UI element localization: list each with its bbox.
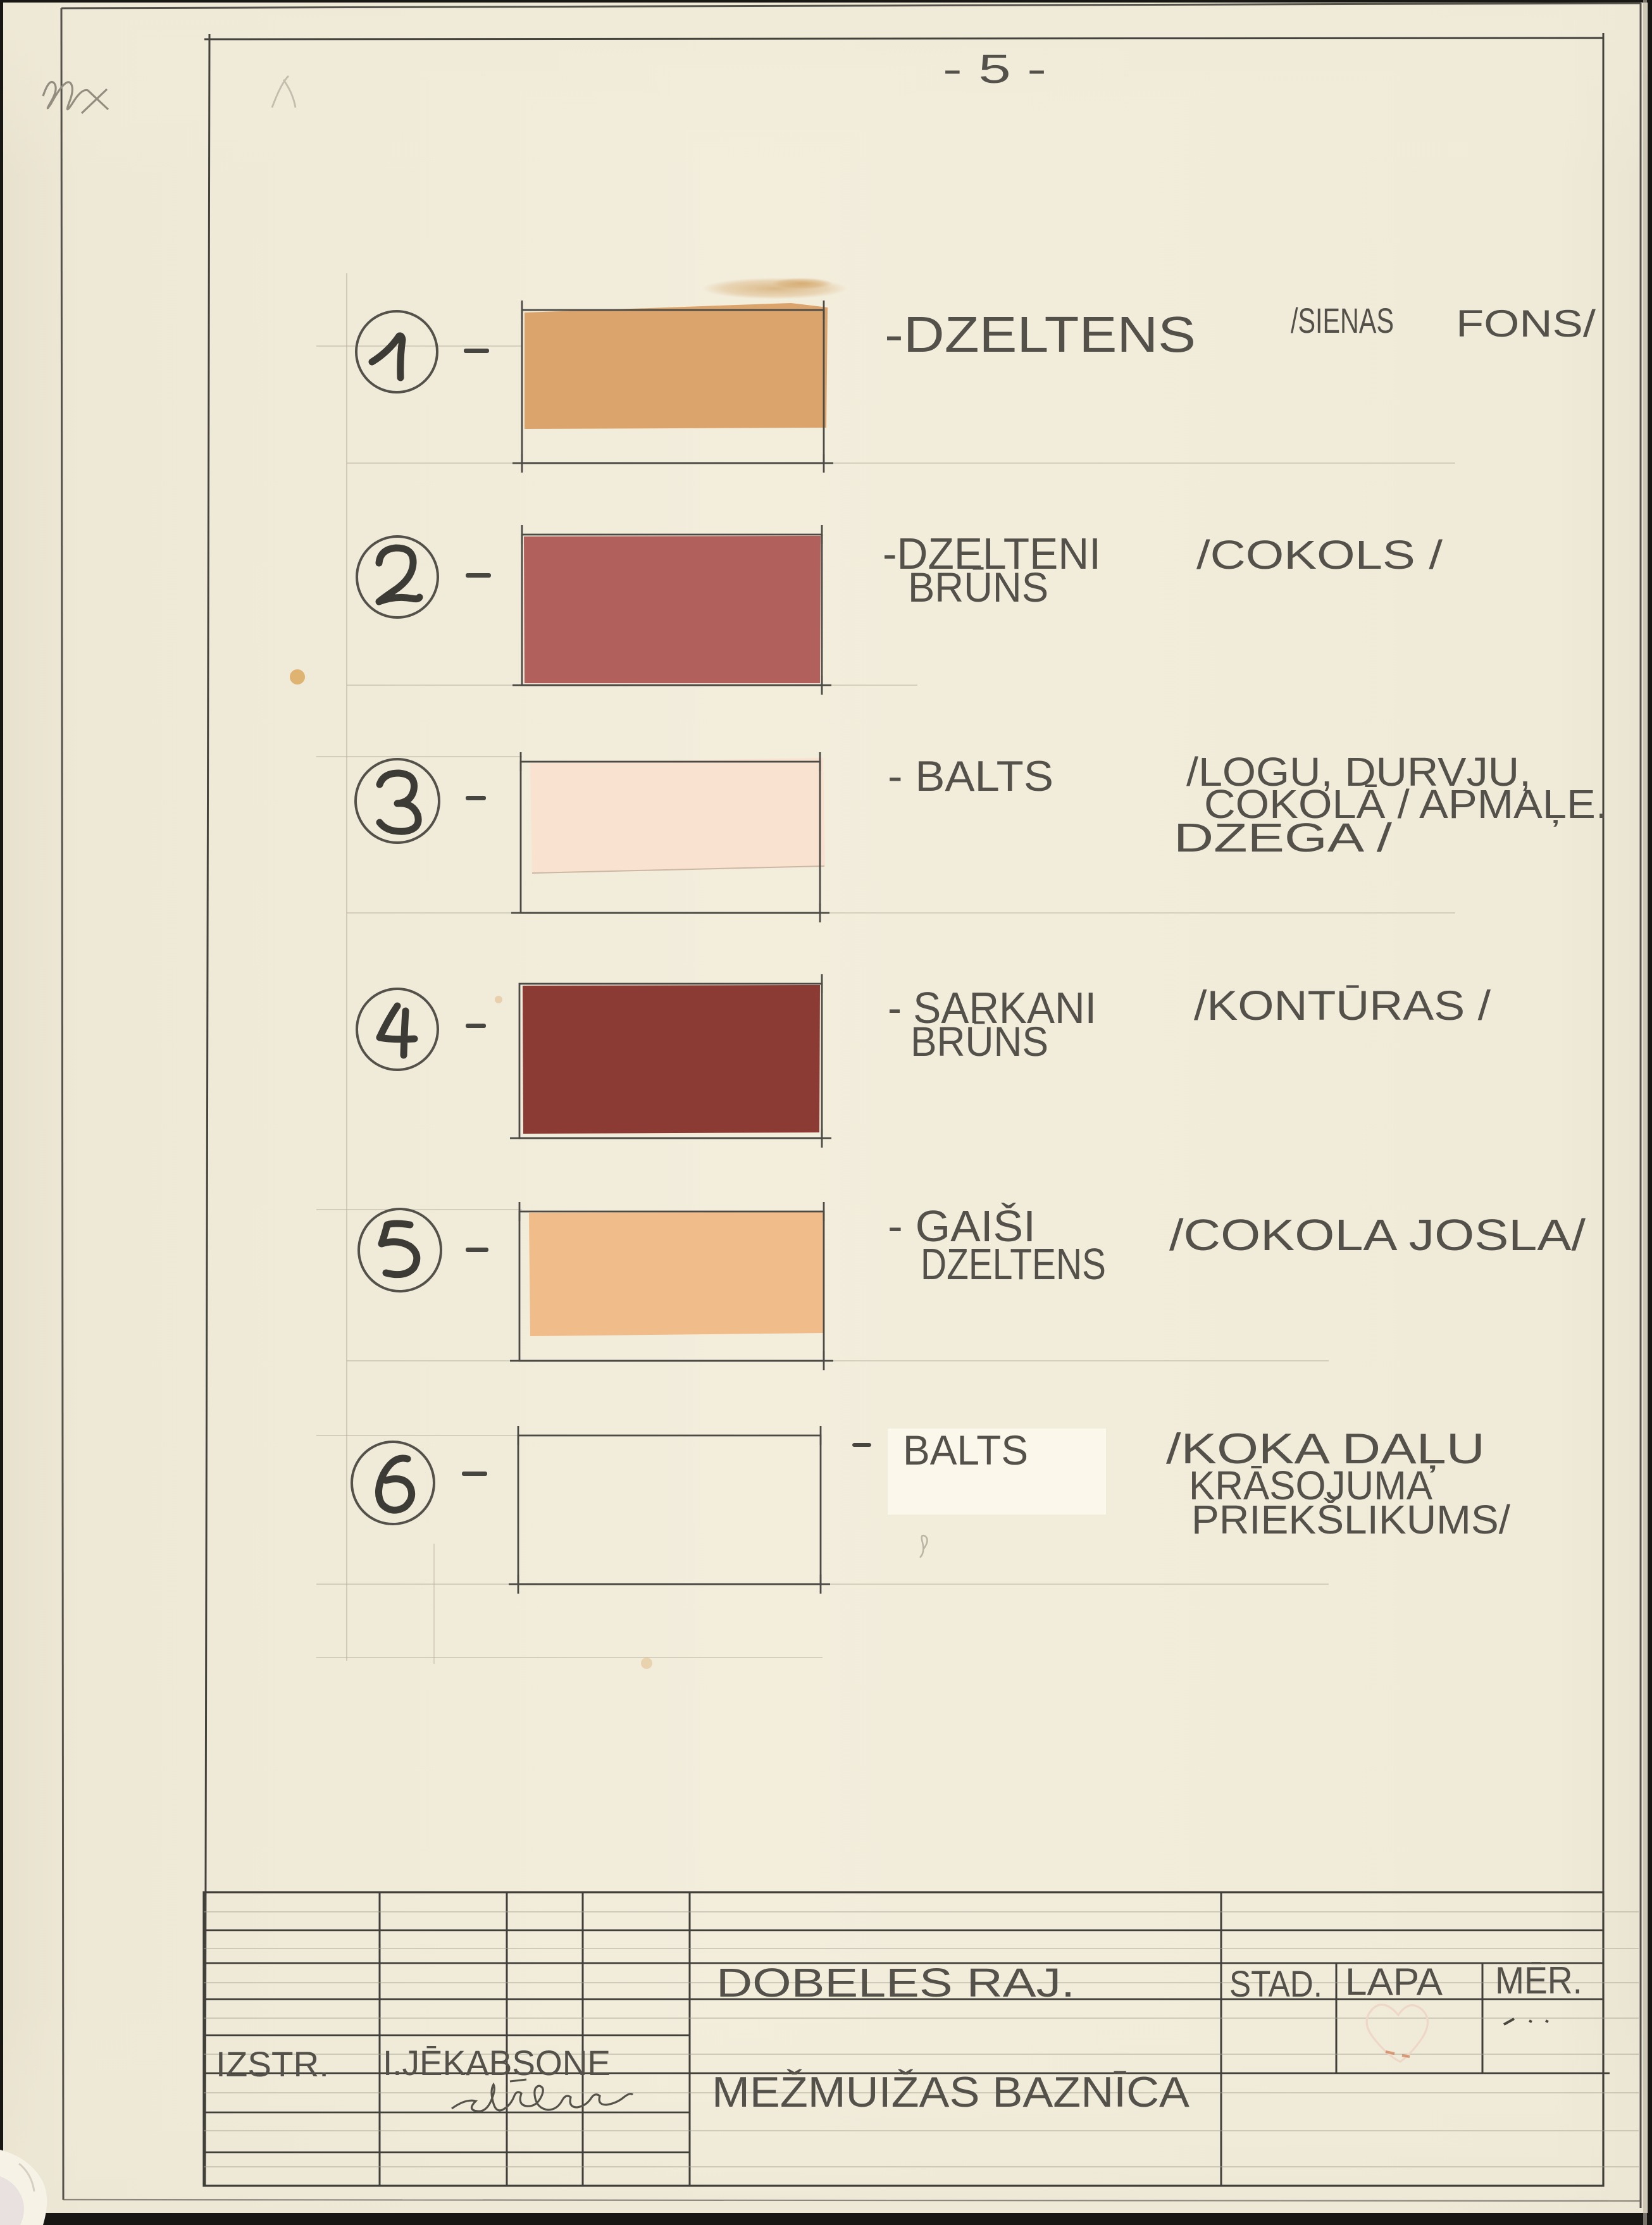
svg-text:STAD.: STAD. [1229, 1964, 1322, 2005]
svg-text:/COKOLS /: /COKOLS / [1196, 532, 1443, 578]
svg-text:/SIENAS: /SIENAS [1291, 301, 1394, 340]
svg-text:PRIEKŠLIKUMS/: PRIEKŠLIKUMS/ [1191, 1497, 1510, 1542]
svg-text:DZEGA /: DZEGA / [1174, 815, 1392, 860]
svg-text:FONS/: FONS/ [1456, 302, 1596, 345]
svg-text:- BALTS: - BALTS [888, 752, 1053, 800]
svg-text:DZELTENS: DZELTENS [921, 1239, 1106, 1289]
svg-text:-DZELTENS: -DZELTENS [885, 306, 1196, 363]
svg-text:BRŪNS: BRŪNS [910, 1018, 1048, 1065]
svg-text:/COKOLA JOSLA/: /COKOLA JOSLA/ [1169, 1210, 1586, 1260]
svg-text:LAPA: LAPA [1345, 1961, 1443, 2003]
svg-text:MĒR.: MĒR. [1495, 1959, 1582, 2002]
svg-text:I.JĒKABSONE: I.JĒKABSONE [383, 2043, 611, 2083]
svg-text:/KONTŪRAS /: /KONTŪRAS / [1194, 982, 1491, 1029]
svg-text:MEŽMUIŽAS BAZNĪCA: MEŽMUIŽAS BAZNĪCA [712, 2068, 1190, 2116]
svg-text:DOBELES RAJ.: DOBELES RAJ. [716, 1960, 1075, 2005]
svg-text:- 5 -: - 5 - [943, 46, 1046, 92]
svg-text:BALTS: BALTS [903, 1427, 1028, 1473]
svg-text:BRŪNS: BRŪNS [908, 564, 1048, 610]
svg-text:IZSTR.: IZSTR. [216, 2044, 329, 2084]
